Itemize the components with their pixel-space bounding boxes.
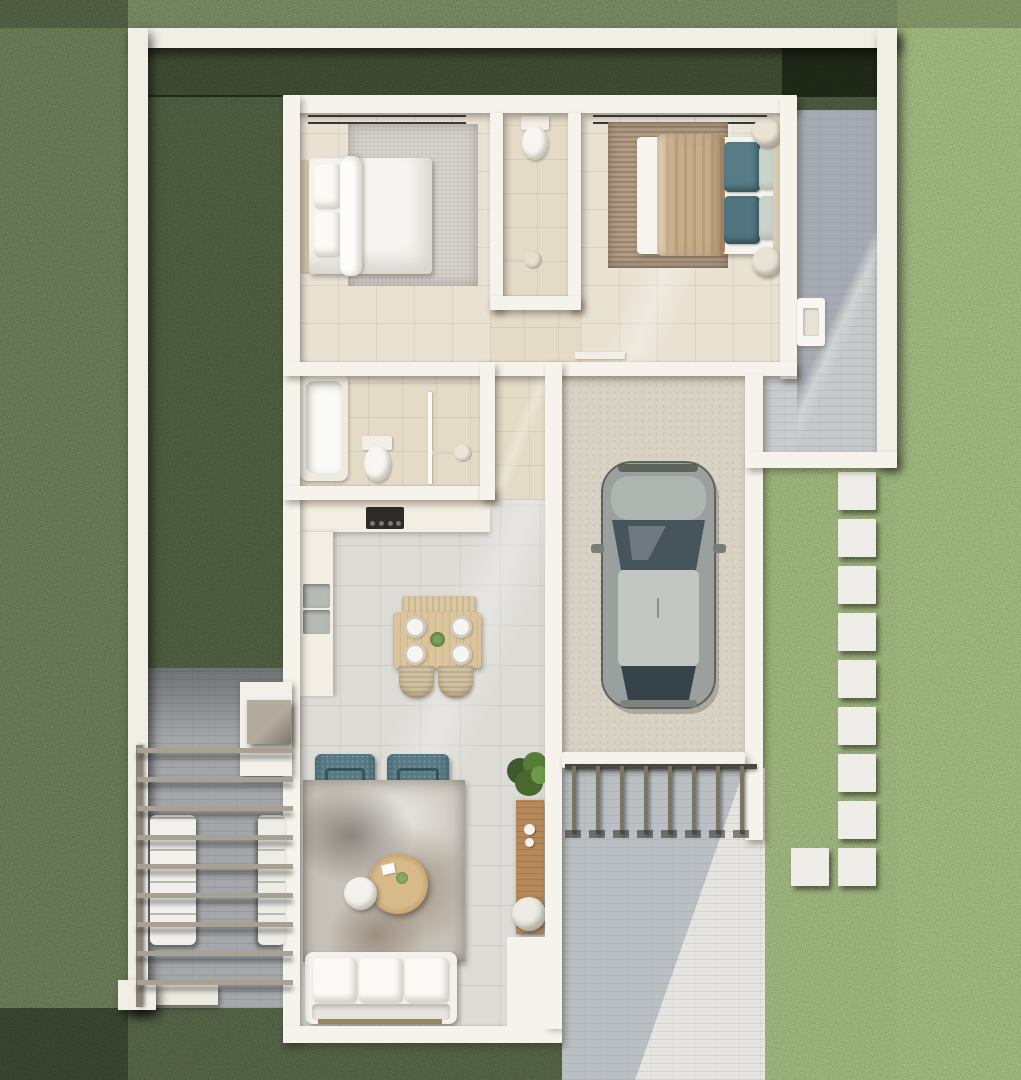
shared-bath-wall-right <box>568 113 581 310</box>
hallway-wall-left <box>480 362 495 500</box>
railing-post <box>572 766 576 834</box>
cooktop <box>366 507 404 529</box>
main-shower-head-icon <box>454 444 472 462</box>
hallway-floor <box>495 375 545 500</box>
kitchen-sink-basin <box>303 610 330 634</box>
sofa-back-console <box>318 1019 442 1024</box>
bedroom2-round-pouf <box>752 117 782 147</box>
bedroom2-wall-shelf <box>575 352 625 359</box>
pergola-beam <box>137 777 293 782</box>
utility-sink-basin <box>803 308 819 336</box>
railing-post <box>668 766 672 834</box>
bedroom1-pillow <box>314 212 340 256</box>
round-coffee-table <box>368 854 428 914</box>
stepping-stone <box>838 519 876 557</box>
bedroom1-pillow <box>314 164 340 208</box>
car-mirror-right <box>713 544 726 553</box>
pergola-beam <box>137 980 293 985</box>
burner-knob-icon <box>370 521 375 526</box>
shared-bath-wall-left <box>490 113 503 310</box>
burner-knob-icon <box>379 521 384 526</box>
boundary-wall-top <box>128 28 897 48</box>
burner-knob-icon <box>388 521 393 526</box>
pergola-beam <box>137 806 293 811</box>
console-plate-icon <box>525 838 534 847</box>
console-plate-icon <box>524 824 535 835</box>
entry-vestibule <box>507 937 562 1029</box>
floor-plan-render <box>0 0 1021 1080</box>
bathtub-basin <box>306 381 342 473</box>
side-yard-shadow <box>797 110 877 455</box>
side-yard-pavers-extension <box>763 375 797 455</box>
car-rear-window <box>621 666 696 700</box>
stepping-stone <box>838 566 876 604</box>
car-front-trim <box>618 464 698 472</box>
stepping-stone <box>838 848 876 886</box>
kitchen-sink-basin <box>303 584 330 608</box>
house-wall-middle-band <box>283 362 797 376</box>
stepping-stone-offset <box>791 848 829 886</box>
main-toilet-bowl <box>364 446 391 482</box>
plate-icon <box>404 643 426 665</box>
book-icon <box>381 863 396 875</box>
living-sofa <box>305 952 457 1024</box>
side-yard-pavers <box>797 110 877 455</box>
bathroom-kitchen-wall <box>283 486 495 500</box>
parked-car <box>588 448 728 723</box>
railing-post <box>620 766 624 834</box>
car-trunk <box>620 700 697 707</box>
bedroom1-curtain-rail <box>308 115 466 124</box>
burner-knob-icon <box>396 521 401 526</box>
railing-post <box>740 766 744 834</box>
stepping-stone-path <box>838 472 876 892</box>
bedroom2-teal-pillow <box>724 142 760 192</box>
plate-icon <box>450 616 472 638</box>
pergola-beam <box>137 864 293 869</box>
stepping-stone <box>838 613 876 651</box>
planter-cube <box>247 700 291 744</box>
stepping-stone <box>838 660 876 698</box>
plate-icon <box>450 643 472 665</box>
railing-post <box>644 766 648 834</box>
stepping-stone <box>838 754 876 792</box>
shared-bath-wall-bottom <box>490 296 581 310</box>
pergola-beam <box>137 922 293 927</box>
bedroom2-teal-pillow <box>724 196 760 244</box>
dining-table <box>393 612 481 668</box>
railing-posts <box>565 766 757 836</box>
sofa-seat-cushion <box>405 958 448 1002</box>
stepping-stone <box>838 707 876 745</box>
pergola-beam <box>137 748 293 753</box>
dining-bench <box>402 596 476 612</box>
house-wall-right-upper <box>780 95 797 379</box>
upper-hall-floor <box>490 310 581 362</box>
stepping-stone <box>838 801 876 839</box>
railing-post <box>596 766 600 834</box>
car-hood <box>611 476 706 520</box>
railing-post <box>692 766 696 834</box>
railing-post <box>716 766 720 834</box>
side-yard-wall-bottom <box>745 452 897 468</box>
kitchen-counter-left-run <box>300 532 333 696</box>
living-white-pouf <box>512 897 546 931</box>
plate-icon <box>404 616 426 638</box>
white-side-table <box>344 877 377 910</box>
sofa-backrest <box>312 1004 450 1020</box>
pergola-beam <box>137 835 293 840</box>
pergola-beam <box>137 951 293 956</box>
garage-living-wall <box>545 362 562 1026</box>
car-mirror-left <box>591 544 604 553</box>
shower-head-icon <box>524 251 542 269</box>
sofa-seat-cushion <box>313 958 356 1002</box>
boundary-wall-right <box>877 28 897 465</box>
bedroom2-round-pouf <box>752 247 782 277</box>
bedroom2-tan-duvet <box>657 134 725 256</box>
sofa-seat-cushion <box>359 958 402 1002</box>
dining-chair <box>438 666 473 698</box>
dining-chair <box>399 666 434 698</box>
house-wall-top <box>283 95 797 113</box>
bathtub <box>300 373 348 481</box>
shower-glass-divider <box>428 392 432 484</box>
bedroom1-throw-blanket <box>340 156 362 276</box>
stepping-stone <box>838 472 876 510</box>
utility-sink-niche <box>797 298 825 346</box>
pergola-beams <box>137 748 293 990</box>
shared-toilet-bowl <box>522 126 548 160</box>
table-plant-icon <box>396 872 408 884</box>
pergola-beam <box>137 893 293 898</box>
centerpiece-plant-icon <box>430 632 445 647</box>
